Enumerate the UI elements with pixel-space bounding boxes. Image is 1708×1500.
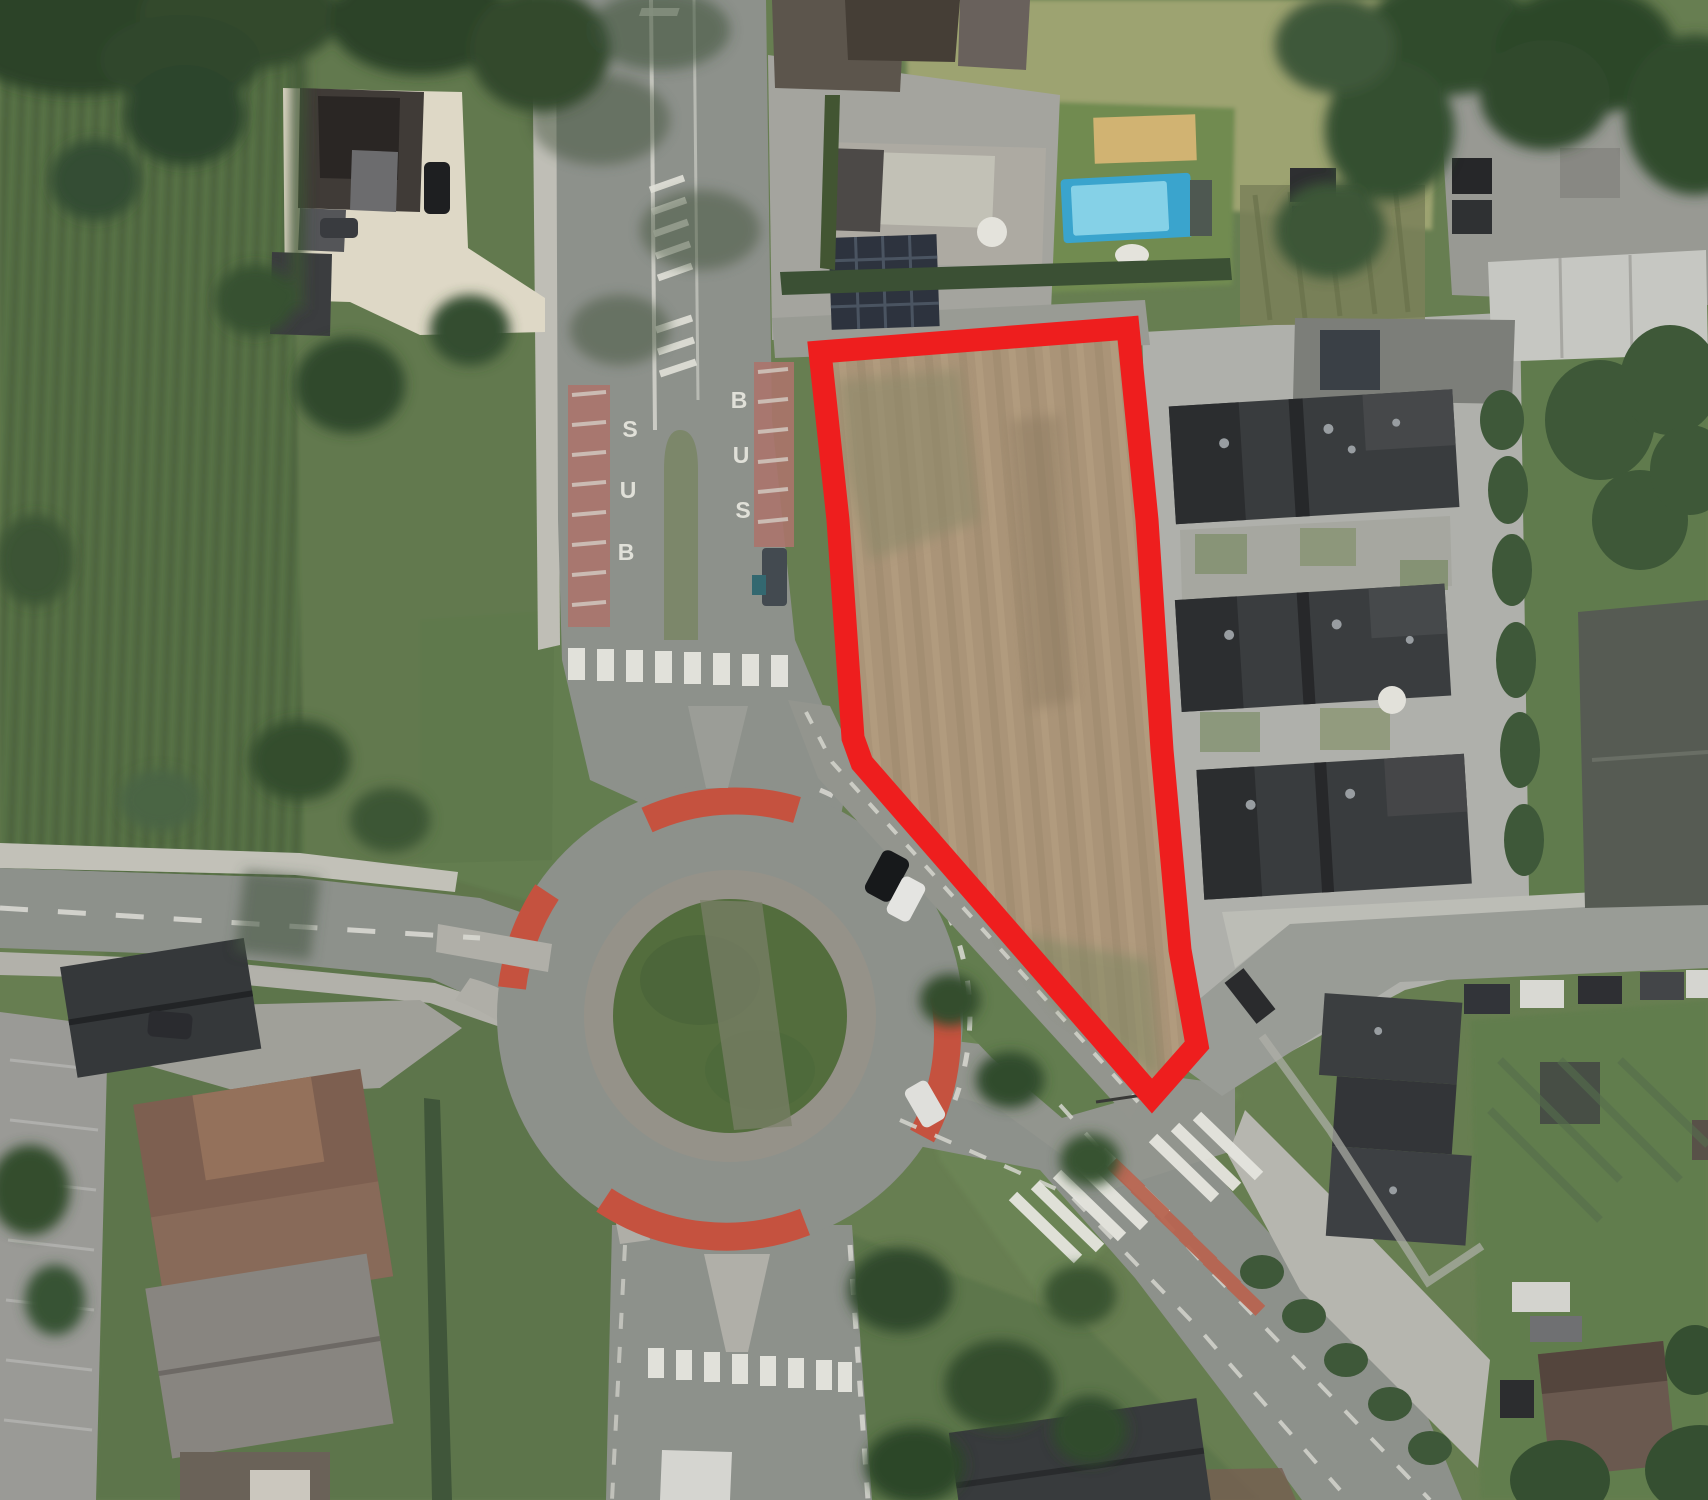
svg-text:U: U [733,442,750,468]
svg-text:U: U [620,477,637,503]
svg-text:S: S [735,497,750,523]
svg-text:S: S [622,416,637,442]
svg-text:B: B [731,387,748,413]
svg-text:B: B [618,539,635,565]
